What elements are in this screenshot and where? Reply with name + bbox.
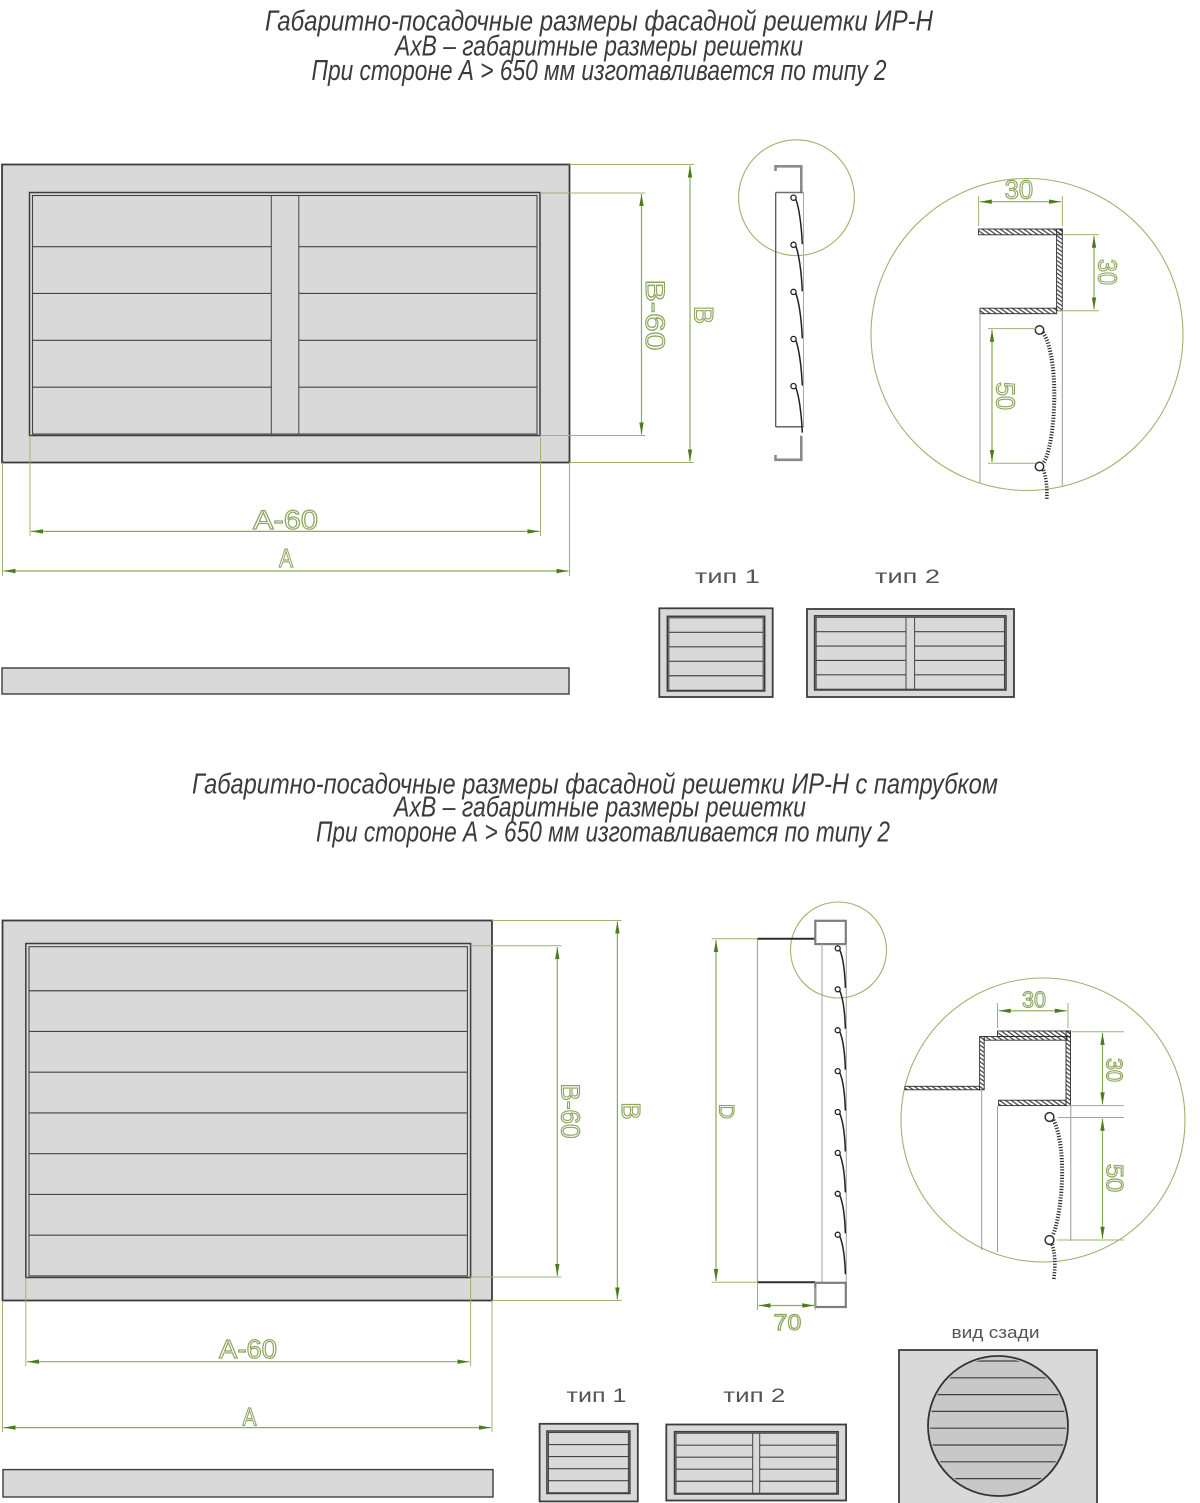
svg-text:30: 30 [1022, 987, 1046, 1013]
svg-text:30: 30 [1102, 1058, 1128, 1082]
svg-text:50: 50 [991, 382, 1021, 410]
svg-text:В: В [616, 1102, 646, 1119]
svg-text:В-60: В-60 [640, 280, 670, 351]
svg-text:В: В [689, 306, 719, 324]
svg-text:тип 1: тип 1 [567, 1386, 627, 1407]
svg-text:А-60: А-60 [219, 1334, 277, 1364]
svg-text:30: 30 [1005, 175, 1034, 205]
svg-text:тип 2: тип 2 [875, 567, 940, 588]
svg-text:А: А [243, 1404, 257, 1432]
svg-text:В-60: В-60 [556, 1084, 586, 1139]
svg-text:А-60: А-60 [253, 505, 318, 535]
svg-text:тип 1: тип 1 [695, 567, 760, 588]
svg-text:вид сзади: вид сзади [952, 1323, 1040, 1342]
svg-text:70: 70 [774, 1310, 802, 1335]
svg-text:тип 2: тип 2 [723, 1386, 785, 1407]
svg-text:D: D [715, 1104, 738, 1119]
svg-text:50: 50 [1101, 1164, 1128, 1192]
svg-text:При стороне А > 650 мм изготав: При стороне А > 650 мм изготавливается п… [312, 55, 887, 87]
svg-text:30: 30 [1093, 259, 1123, 285]
svg-text:При стороне А > 650 мм изготав: При стороне А > 650 мм изготавливается п… [316, 816, 890, 848]
svg-text:А: А [279, 543, 294, 573]
